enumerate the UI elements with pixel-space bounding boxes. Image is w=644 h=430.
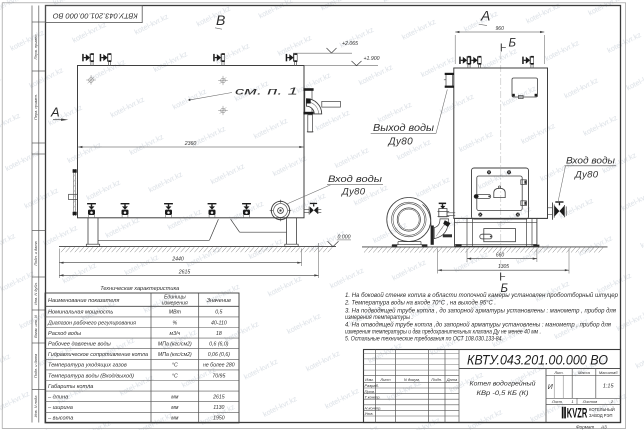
svg-text:1: 1 bbox=[571, 399, 573, 404]
svg-text:Разраб.: Разраб. bbox=[365, 383, 379, 388]
svg-text:1. На боковой стенке котла в: 1. На боковой стенке котла в области топ… bbox=[345, 292, 619, 299]
svg-text:0,6 (6,0): 0,6 (6,0) bbox=[209, 342, 229, 348]
svg-text:5. Остальные технические треб: 5. Остальные технические требования по О… bbox=[345, 337, 503, 343]
svg-text:измерения температуры и два пр: измерения температуры и два предохраните… bbox=[345, 330, 541, 336]
svg-text:ЗАВОД РЭП: ЗАВОД РЭП bbox=[589, 413, 612, 418]
svg-text:Выход воды: Выход воды bbox=[373, 123, 435, 134]
svg-text:мм: мм bbox=[171, 395, 179, 401]
svg-text:1:15: 1:15 bbox=[603, 383, 615, 389]
svg-text:Диапазон рабочего регулировани: Диапазон рабочего регулирования bbox=[47, 320, 136, 326]
svg-text:КВр -0,5 КБ (К): КВр -0,5 КБ (К) bbox=[477, 390, 529, 397]
svg-text:Перв. примен.: Перв. примен. bbox=[33, 34, 38, 60]
svg-text:КВТУ.043.201.00.000 ВО: КВТУ.043.201.00.000 ВО bbox=[52, 11, 138, 18]
svg-text:А: А bbox=[480, 8, 490, 24]
svg-text:Б: Б bbox=[509, 38, 517, 50]
svg-text:измерения температуры .: измерения температуры . bbox=[345, 315, 413, 321]
svg-text:3. На подводящей трубе котла: 3. На подводящей трубе котла , до запорн… bbox=[345, 307, 617, 314]
svg-text:Наименование показателя: Наименование показателя bbox=[48, 298, 119, 304]
svg-text:Вход воды: Вход воды bbox=[328, 174, 382, 185]
svg-text:Котел водогрейный: Котел водогрейный bbox=[470, 380, 536, 388]
svg-text:Лист: Лист bbox=[379, 377, 391, 382]
svg-text:А3: А3 bbox=[600, 424, 607, 429]
svg-text:Масштаб: Масштаб bbox=[599, 370, 618, 375]
svg-text:Габариты котла: Габариты котла bbox=[48, 384, 93, 390]
svg-text:Ду80: Ду80 bbox=[341, 187, 366, 198]
svg-text:70/95: 70/95 bbox=[212, 373, 225, 379]
svg-text:Расход воды: Расход воды bbox=[48, 331, 81, 337]
svg-text:Н.контр.: Н.контр. bbox=[365, 406, 382, 411]
svg-text:КОТЕЛЬНЫЙ: КОТЕЛЬНЫЙ bbox=[589, 407, 615, 412]
svg-text:Лист: Лист bbox=[551, 399, 563, 404]
svg-text:1950: 1950 bbox=[213, 416, 225, 422]
svg-text:2360: 2360 bbox=[184, 141, 197, 147]
svg-text:Вход воды: Вход воды bbox=[566, 156, 615, 167]
svg-text:МПа (кгс/см2): МПа (кгс/см2) bbox=[158, 352, 192, 358]
svg-text:Температура уходящих газов: Температура уходящих газов bbox=[48, 363, 127, 369]
svg-text:– длина: – длина bbox=[47, 395, 68, 401]
svg-text:Утв.: Утв. bbox=[365, 411, 374, 416]
svg-text:Гидравлическое сопротивление к: Гидравлическое сопротивление котла bbox=[48, 352, 148, 358]
svg-text:В: В bbox=[216, 12, 225, 28]
svg-text:°С: °С bbox=[172, 373, 178, 379]
svg-text:мм: мм bbox=[171, 405, 179, 411]
svg-text:Взам. инв. N: Взам. инв. N bbox=[33, 315, 38, 338]
svg-text:0,5: 0,5 bbox=[215, 310, 222, 316]
svg-text:Инв. N дубл.: Инв. N дубл. bbox=[33, 282, 38, 305]
svg-text:Изм.: Изм. bbox=[365, 377, 374, 382]
svg-text:Подп. и дата: Подп. и дата bbox=[33, 353, 38, 378]
svg-text:МВт: МВт bbox=[169, 310, 182, 316]
svg-text:Масса: Масса bbox=[578, 370, 591, 375]
svg-text:Формат: Формат bbox=[576, 424, 594, 429]
svg-text:Значение: Значение bbox=[207, 298, 232, 304]
svg-text:– высота: – высота bbox=[47, 416, 73, 422]
svg-text:0,06 (0,6): 0,06 (0,6) bbox=[208, 352, 230, 358]
svg-text:Номинальная мощность: Номинальная мощность bbox=[48, 310, 113, 316]
svg-text:МПа (кгс/см2): МПа (кгс/см2) bbox=[158, 342, 192, 348]
svg-text:– ширина: – ширина bbox=[47, 405, 73, 411]
svg-text:18: 18 bbox=[216, 331, 222, 337]
svg-text:4. На отводящей трубе котла ,: 4. На отводящей трубе котла ,до запорной… bbox=[345, 322, 612, 329]
svg-text:Ду80: Ду80 bbox=[574, 170, 599, 181]
svg-text:м3/ч: м3/ч bbox=[170, 331, 181, 337]
svg-text:%: % bbox=[173, 320, 178, 326]
svg-text:1305: 1305 bbox=[498, 264, 509, 270]
svg-text:Подп. и дата: Подп. и дата bbox=[33, 240, 38, 265]
svg-text:2615: 2615 bbox=[178, 269, 191, 275]
svg-text:N докум.: N докум. bbox=[404, 377, 420, 382]
svg-text:+2.065: +2.065 bbox=[342, 41, 358, 47]
svg-text:960: 960 bbox=[496, 26, 505, 32]
svg-text:1130: 1130 bbox=[213, 405, 224, 411]
svg-text:Т.контр.: Т.контр. bbox=[365, 394, 381, 399]
svg-text:см. п. 1: см. п. 1 bbox=[235, 87, 298, 98]
svg-text:не более 280: не более 280 bbox=[203, 363, 235, 369]
svg-text:2. Температура воды на входе: 2. Температура воды на входе 70°С , на в… bbox=[344, 301, 496, 307]
svg-text:Листов: Листов bbox=[582, 399, 598, 404]
svg-text:измерения: измерения bbox=[162, 301, 188, 307]
svg-text:Перв. примен.: Перв. примен. bbox=[33, 94, 38, 120]
svg-text:Пров.: Пров. bbox=[365, 389, 376, 394]
svg-text:Инв. N подл.: Инв. N подл. bbox=[33, 395, 38, 418]
svg-text:2615: 2615 bbox=[212, 395, 225, 401]
svg-text:Температура воды (Вход/выход): Температура воды (Вход/выход) bbox=[48, 373, 134, 379]
svg-text:KVZR: KVZR bbox=[567, 405, 588, 421]
svg-text:А: А bbox=[50, 105, 60, 120]
svg-text:мм: мм bbox=[171, 416, 179, 422]
svg-text:°С: °С bbox=[172, 363, 178, 369]
svg-text:40-110: 40-110 bbox=[211, 320, 227, 326]
svg-text:2440: 2440 bbox=[171, 257, 184, 263]
svg-text:Рабочее давление воды: Рабочее давление воды bbox=[48, 342, 111, 348]
svg-text:+1.900: +1.900 bbox=[364, 56, 380, 62]
svg-text:Дата: Дата bbox=[446, 377, 458, 382]
svg-text:КВТУ.043.201.00.000 ВО: КВТУ.043.201.00.000 ВО bbox=[467, 352, 608, 367]
svg-text:Техническая характеристика: Техническая характеристика bbox=[100, 286, 180, 292]
svg-text:Лит.: Лит. bbox=[553, 370, 563, 375]
svg-text:Подп.: Подп. bbox=[431, 377, 442, 382]
svg-text:Ду80: Ду80 bbox=[388, 137, 414, 148]
svg-text:660: 660 bbox=[496, 253, 505, 259]
